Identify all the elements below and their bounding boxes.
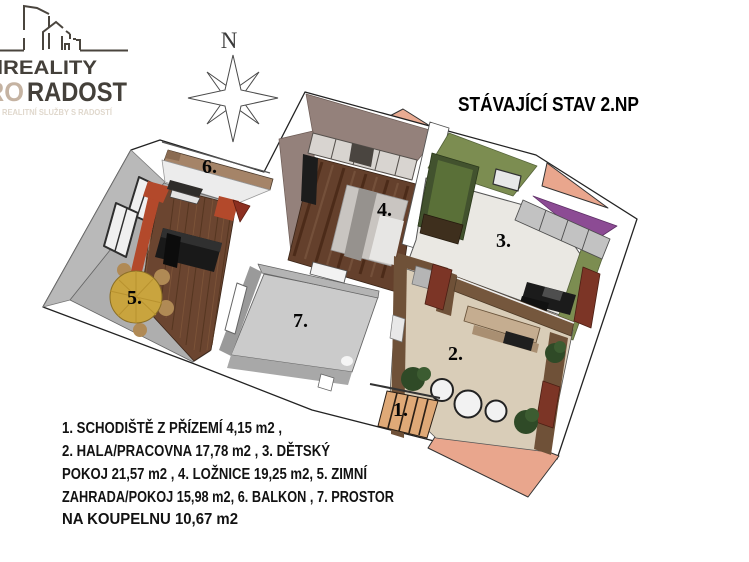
svg-text:RADOST: RADOST bbox=[27, 77, 127, 107]
svg-text:5.: 5. bbox=[127, 287, 142, 309]
svg-text:POKOJ 21,57 m2 , 4. LOŽNICE 19: POKOJ 21,57 m2 , 4. LOŽNICE 19,25 m2, 5.… bbox=[62, 465, 368, 483]
svg-text:6.: 6. bbox=[202, 156, 217, 178]
svg-text:4.: 4. bbox=[377, 199, 392, 221]
svg-text:ZAHRADA/POKOJ 15,98 m2, 6. BAL: ZAHRADA/POKOJ 15,98 m2, 6. BALKON , 7. P… bbox=[62, 489, 394, 506]
svg-text:7.: 7. bbox=[293, 310, 308, 332]
svg-text:PRO: PRO bbox=[0, 77, 24, 107]
svg-text:REALITNÍ SLUŽBY S RADOSTÍ: REALITNÍ SLUŽBY S RADOSTÍ bbox=[2, 106, 113, 117]
svg-text:2.: 2. bbox=[448, 343, 463, 365]
svg-text:1.: 1. bbox=[393, 399, 408, 421]
svg-text:2. HALA/PRACOVNA 17,78 m2 , 3.: 2. HALA/PRACOVNA 17,78 m2 , 3. DĚTSKÝ bbox=[62, 442, 331, 460]
svg-text:N: N bbox=[221, 28, 238, 53]
svg-text:REALITY: REALITY bbox=[3, 58, 97, 79]
svg-text:STÁVAJÍCÍ STAV 2.NP: STÁVAJÍCÍ STAV 2.NP bbox=[458, 93, 639, 116]
svg-text:NA KOUPELNU 10,67 m2: NA KOUPELNU 10,67 m2 bbox=[62, 511, 238, 528]
svg-text:3.: 3. bbox=[496, 230, 511, 252]
svg-text:1. SCHODIŠTĚ Z PŘÍZEMÍ 4,15 m2: 1. SCHODIŠTĚ Z PŘÍZEMÍ 4,15 m2 , bbox=[62, 419, 282, 437]
